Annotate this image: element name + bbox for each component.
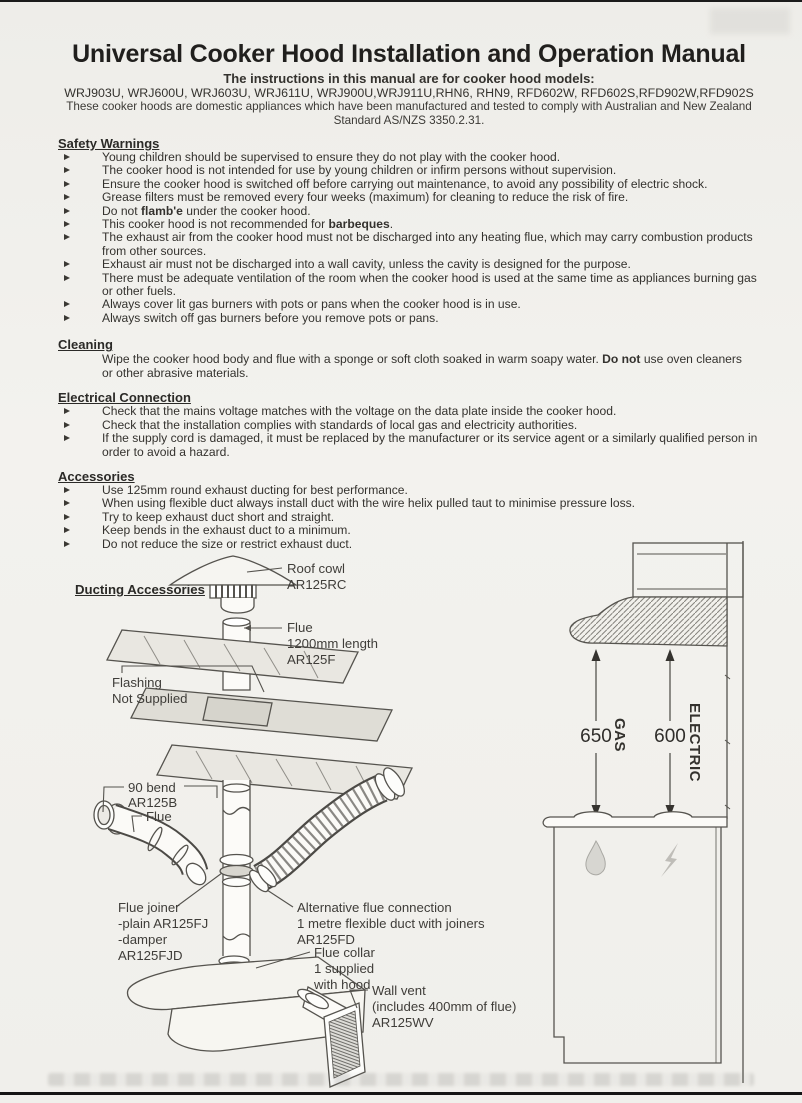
- section-heading-cleaning: Cleaning: [58, 337, 760, 352]
- bullet-arrow-icon: [58, 231, 102, 258]
- document-body: Universal Cooker Hood Installation and O…: [0, 0, 802, 551]
- safety-item: The exhaust air from the cooker hood mus…: [58, 231, 760, 258]
- manual-page: Universal Cooker Hood Installation and O…: [0, 0, 802, 1103]
- svg-text:AR125RC: AR125RC: [287, 577, 347, 592]
- flue-joiner-label: Flue joiner: [118, 900, 180, 915]
- svg-text:with hood: with hood: [313, 977, 370, 992]
- bullet-arrow-icon: [58, 151, 102, 164]
- bullet-arrow-icon: [58, 164, 102, 177]
- svg-text:AR125WV: AR125WV: [372, 1015, 434, 1030]
- safety-item: Exhaust air must not be discharged into …: [58, 258, 760, 271]
- electrical-item: Check that the installation complies wit…: [58, 419, 760, 432]
- electric-bolt-icon: [661, 843, 678, 877]
- cleaning-text: Wipe the cooker hood body and flue with …: [102, 352, 742, 380]
- gas-clearance-label: GAS: [611, 718, 628, 752]
- safety-list: Young children should be supervised to e…: [58, 151, 760, 325]
- accessories-item: Try to keep exhaust duct short and strai…: [58, 511, 760, 524]
- roof-cowl-label: Roof cowl: [287, 561, 345, 576]
- safety-item: Grease filters must be removed every fou…: [58, 191, 760, 204]
- page-title: Universal Cooker Hood Installation and O…: [58, 40, 760, 68]
- flue-side-label: Flue: [146, 809, 172, 824]
- compliance-line: These cooker hoods are domestic applianc…: [58, 100, 760, 114]
- bullet-arrow-icon: [58, 405, 102, 418]
- svg-text:AR125FJD: AR125FJD: [118, 948, 183, 963]
- bullet-arrow-icon: [58, 497, 102, 510]
- roof-cowl-drawing: [170, 556, 296, 613]
- bullet-arrow-icon: [58, 191, 102, 204]
- safety-item: Do not flamb'e under the cooker hood.: [58, 205, 760, 218]
- svg-text:-damper: -damper: [118, 932, 168, 947]
- electrical-list: Check that the mains voltage matches wit…: [58, 405, 760, 459]
- electrical-item: Check that the mains voltage matches wit…: [58, 405, 760, 418]
- safety-item: Ensure the cooker hood is switched off b…: [58, 178, 760, 191]
- section-heading-safety: Safety Warnings: [58, 136, 760, 151]
- clearance-labels: 650 GAS 600 ELECTRIC: [580, 703, 703, 782]
- bullet-arrow-icon: [58, 419, 102, 432]
- bend-label: 90 bend: [128, 780, 176, 795]
- page-bleed-through: [48, 1073, 754, 1086]
- svg-text:1 metre flexible duct with joi: 1 metre flexible duct with joiners: [297, 916, 485, 931]
- flashing-label: Flashing: [112, 675, 162, 690]
- svg-text:AR125F: AR125F: [287, 652, 335, 667]
- bullet-arrow-icon: [58, 258, 102, 271]
- compliance-standard: Standard AS/NZS 3350.2.31.: [58, 114, 760, 128]
- svg-text:-plain AR125FJ: -plain AR125FJ: [118, 916, 208, 931]
- electric-clearance-label: ELECTRIC: [686, 703, 703, 782]
- models-list: WRJ903U, WRJ600U, WRJ603U, WRJ611U, WRJ9…: [58, 86, 760, 100]
- flue-label: Flue: [287, 620, 313, 635]
- svg-text:1200mm length: 1200mm length: [287, 636, 378, 651]
- section-heading-accessories: Accessories: [58, 469, 760, 484]
- stove-body-drawing: [554, 827, 721, 1063]
- scan-edge-top: [0, 0, 802, 2]
- bullet-arrow-icon: [58, 205, 102, 218]
- safety-item: The cooker hood is not intended for use …: [58, 164, 760, 177]
- hood-hatched-drawing: [570, 597, 727, 646]
- diagram-labels: Roof cowl AR125RC Flue 1200mm length AR1…: [112, 561, 516, 1030]
- accessories-item: Use 125mm round exhaust ducting for best…: [58, 484, 760, 497]
- safety-item: There must be adequate ventilation of th…: [58, 272, 760, 299]
- section-heading-electrical: Electrical Connection: [58, 390, 760, 405]
- bullet-arrow-icon: [58, 272, 102, 299]
- scan-smudge: [710, 8, 790, 34]
- safety-item: Always cover lit gas burners with pots o…: [58, 298, 760, 311]
- gas-drop-icon: [586, 841, 605, 875]
- svg-text:(includes 400mm of flue): (includes 400mm of flue): [372, 999, 516, 1014]
- safety-item: This cooker hood is not recommended for …: [58, 218, 760, 231]
- bullet-arrow-icon: [58, 511, 102, 524]
- safety-item: Young children should be supervised to e…: [58, 151, 760, 164]
- svg-text:Not Supplied: Not Supplied: [112, 691, 188, 706]
- electrical-item: If the supply cord is damaged, it must b…: [58, 432, 760, 459]
- gas-clearance-value: 650: [580, 726, 612, 747]
- flue-joiner-drawing: [220, 855, 253, 887]
- safety-item: Always switch off gas burners before you…: [58, 312, 760, 325]
- bullet-arrow-icon: [58, 298, 102, 311]
- flue-collar-label: Flue collar: [314, 945, 375, 960]
- svg-text:AR125B: AR125B: [128, 795, 177, 810]
- cooktop-bench-drawing: [543, 812, 727, 827]
- bullet-arrow-icon: [58, 432, 102, 459]
- bullet-arrow-icon: [58, 178, 102, 191]
- scan-edge-bottom: [0, 1092, 802, 1095]
- clearance-diagram: 650 GAS 600 ELECTRIC: [530, 525, 802, 1100]
- electric-clearance-value: 600: [654, 726, 686, 747]
- wall-vent-label: Wall vent: [372, 983, 426, 998]
- accessories-item: When using flexible duct always install …: [58, 497, 760, 510]
- alt-flue-label: Alternative flue connection: [297, 900, 452, 915]
- bullet-arrow-icon: [58, 524, 102, 537]
- svg-text:1 supplied: 1 supplied: [314, 961, 374, 976]
- bullet-arrow-icon: [58, 484, 102, 497]
- bullet-arrow-icon: [58, 218, 102, 231]
- models-intro: The instructions in this manual are for …: [58, 71, 760, 86]
- ducting-accessories-diagram: Roof cowl AR125RC Flue 1200mm length AR1…: [60, 540, 530, 1100]
- bullet-arrow-icon: [58, 312, 102, 325]
